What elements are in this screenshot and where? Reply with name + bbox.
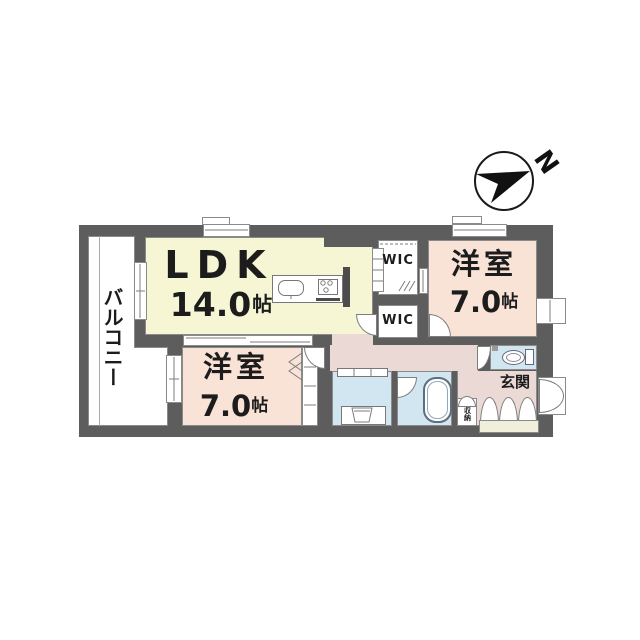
vanity-icon [337, 368, 388, 377]
window-bedroom-right [536, 298, 566, 324]
stove-front-line [316, 298, 340, 301]
ldk-size-unit: 帖 [252, 294, 272, 314]
stove-icon [318, 279, 338, 295]
ldk-label: LDK [158, 245, 280, 285]
room-balcony-extension [134, 347, 168, 426]
compass-icon: N [475, 145, 564, 210]
window-ldk-top [203, 224, 250, 237]
window-bedroom-top [452, 224, 507, 237]
bedroom-bottom-size: 7.0 帖 [190, 388, 278, 424]
bedroom-top-label: 洋室 [440, 247, 528, 281]
ldk-wall-notch [324, 237, 373, 247]
bathtub-inner-line [427, 381, 448, 419]
balcony-label: バルコニー [95, 262, 129, 412]
sliding-door-ldk-bedroom [183, 335, 313, 346]
kitchen-counter-wall [343, 267, 350, 307]
bedroom-top-size-number: 7.0 [450, 288, 501, 317]
bedroom-top-size-unit: 帖 [501, 294, 518, 311]
toilet-seat-line [506, 353, 521, 362]
shoe-cabinet-icon [479, 420, 539, 433]
washer-pan-icon [341, 406, 386, 425]
hallway-ldk-opening [332, 334, 373, 347]
storage-label: 収納 [461, 403, 473, 424]
sliding-door-wic-bedroom [419, 268, 428, 294]
wic-top-label: WIC [378, 252, 418, 268]
wic-bottom-label: WIC [378, 312, 418, 328]
floor-plan: N バルコニー LDK 14.0 帖 洋室 7.0 帖 洋室 7.0 帖 WIC… [0, 0, 640, 640]
window-balcony-ldk [134, 262, 147, 320]
window-balcony-bedroom [166, 355, 182, 403]
bedroom-bottom-size-unit: 帖 [251, 398, 268, 415]
window-bedroom-top-sash [452, 216, 482, 224]
bedroom-bottom-size-number: 7.0 [200, 392, 251, 421]
entrance-label: 玄関 [492, 373, 538, 391]
window-ldk-top-sash [202, 217, 230, 225]
compass-needle-icon [476, 171, 530, 203]
compass-north-label: N [527, 145, 564, 180]
bedroom-bottom-label: 洋室 [192, 350, 280, 384]
ldk-size-number: 14.0 [170, 288, 251, 321]
ldk-size: 14.0 帖 [156, 285, 286, 323]
toilet-tank-icon [525, 349, 534, 365]
bedroom-top-size: 7.0 帖 [440, 284, 528, 320]
toilet-button-icon [492, 346, 498, 351]
